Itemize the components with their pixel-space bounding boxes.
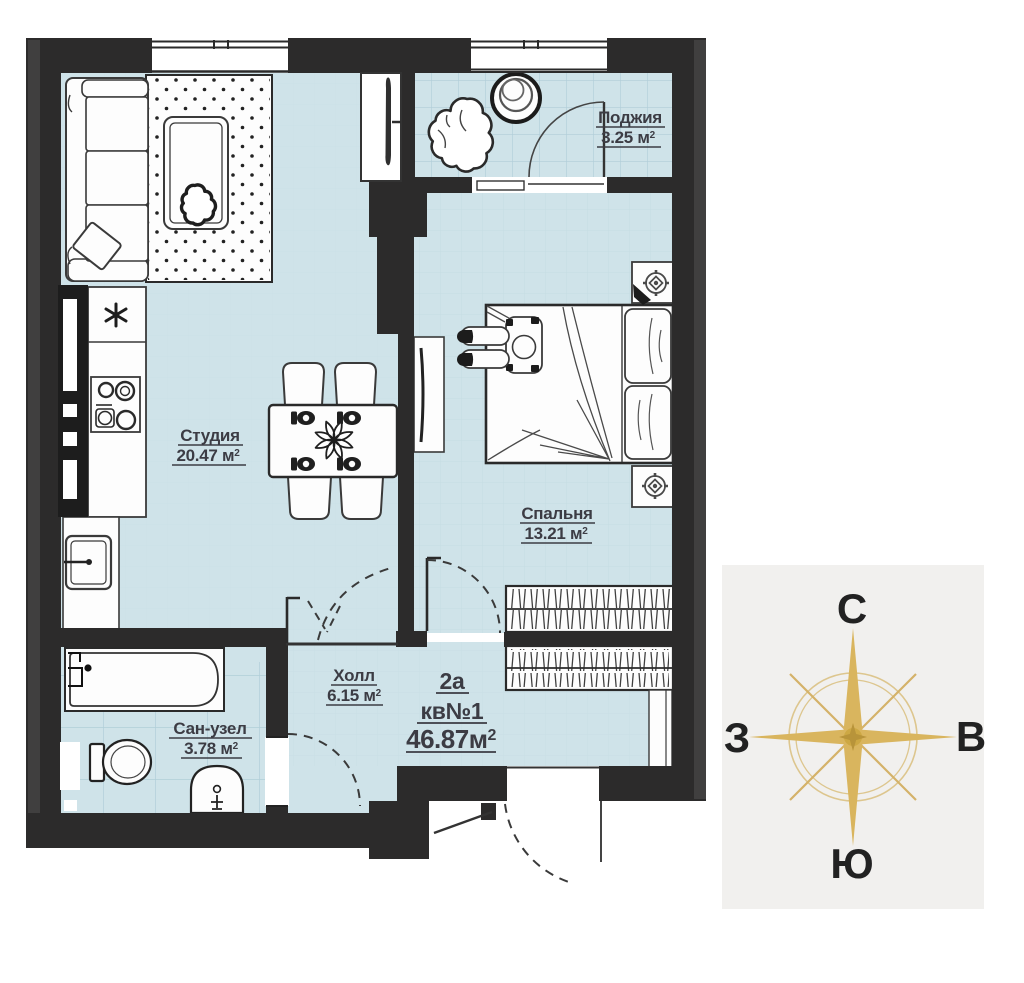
svg-text:Сан-узел: Сан-узел: [173, 719, 246, 738]
svg-text:С: С: [837, 585, 867, 632]
svg-text:В: В: [956, 713, 986, 760]
svg-text:2а: 2а: [440, 668, 465, 694]
svg-text:46.87м2: 46.87м2: [406, 724, 496, 754]
svg-text:20.47 м2: 20.47 м2: [176, 446, 240, 465]
svg-text:Спальня: Спальня: [521, 504, 592, 523]
svg-text:Холл: Холл: [333, 666, 374, 685]
svg-text:Студия: Студия: [180, 426, 239, 445]
svg-text:3.78 м2: 3.78 м2: [184, 739, 239, 758]
svg-text:Поджия: Поджия: [598, 108, 662, 127]
svg-text:13.21 м2: 13.21 м2: [524, 524, 588, 543]
svg-text:3.25 м2: 3.25 м2: [601, 128, 656, 147]
svg-text:З: З: [724, 714, 750, 761]
svg-text:кв№1: кв№1: [421, 698, 484, 724]
svg-text:Ю: Ю: [830, 840, 873, 887]
svg-text:6.15 м2: 6.15 м2: [327, 686, 382, 705]
